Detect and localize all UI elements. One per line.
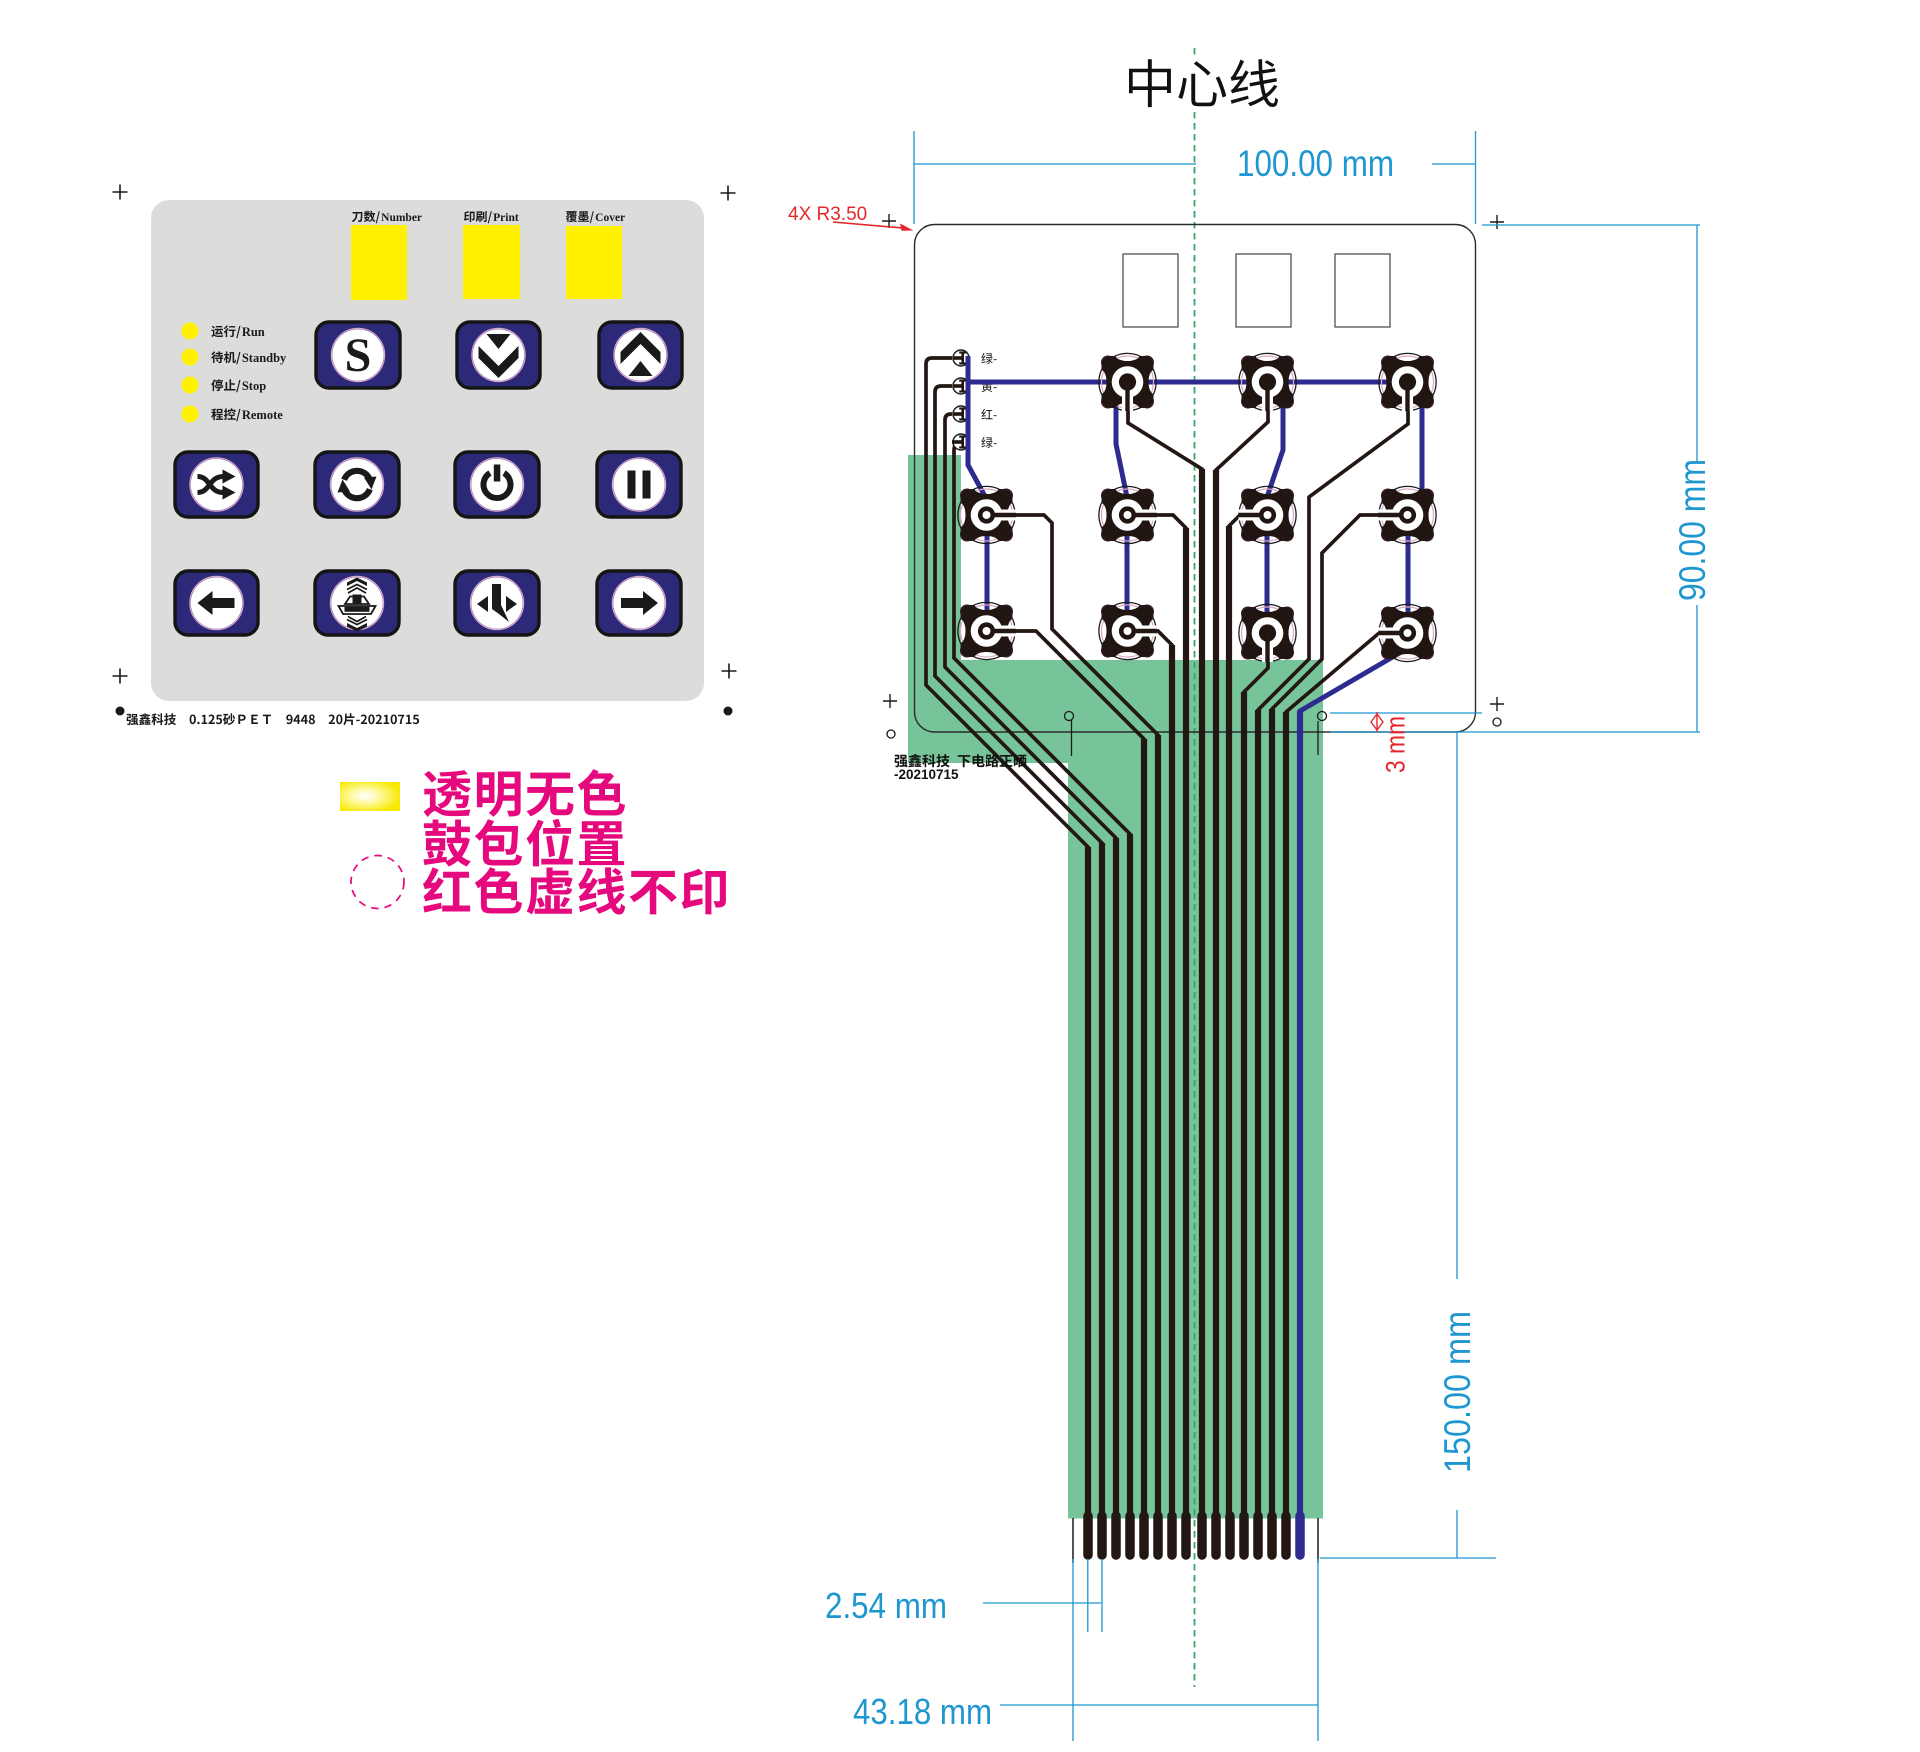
svg-text:-20210715: -20210715 <box>894 767 959 782</box>
svg-text:2.54 mm: 2.54 mm <box>825 1585 947 1626</box>
svg-text:Remote: Remote <box>242 408 283 422</box>
svg-text:Cover: Cover <box>595 212 625 224</box>
svg-text:Number: Number <box>381 212 422 224</box>
svg-text:3 mm: 3 mm <box>1381 716 1411 773</box>
svg-text:Run: Run <box>242 325 265 339</box>
svg-text:S: S <box>345 329 372 382</box>
svg-text:Stop: Stop <box>242 379 266 393</box>
svg-text:150.00 mm: 150.00 mm <box>1437 1311 1478 1473</box>
svg-text:100.00 mm: 100.00 mm <box>1237 143 1394 184</box>
svg-text:90.00 mm: 90.00 mm <box>1672 459 1713 601</box>
svg-text:43.18 mm: 43.18 mm <box>853 1691 992 1732</box>
svg-text:Print: Print <box>493 212 519 224</box>
svg-text:Standby: Standby <box>242 351 287 365</box>
svg-text:4X R3.50: 4X R3.50 <box>788 204 867 225</box>
